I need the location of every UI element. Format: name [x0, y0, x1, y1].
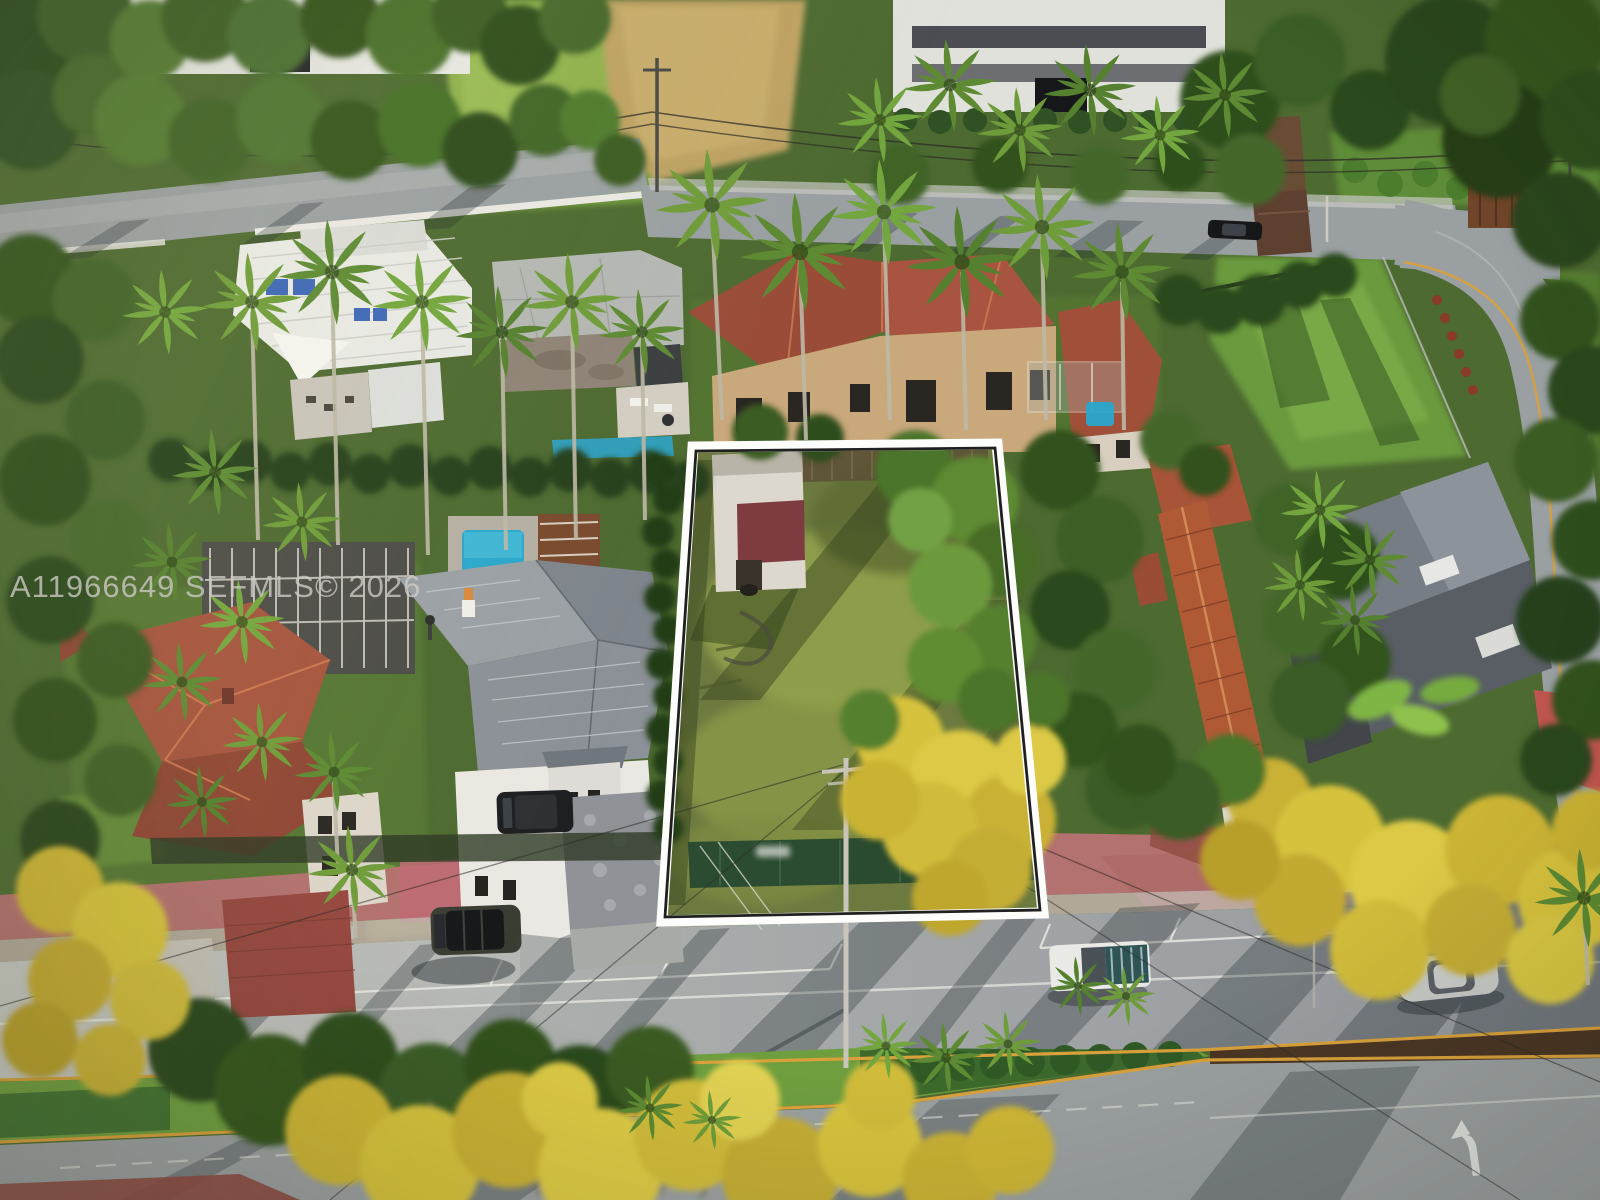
fence-banner	[756, 846, 790, 857]
vehicle-suv-driveway	[496, 790, 573, 835]
aerial-photo: A11966649 SEFMLS© 2026	[0, 0, 1600, 1200]
mls-watermark-text: A11966649 SEFMLS© 2026	[10, 569, 421, 604]
brick-patio	[222, 890, 356, 1018]
mls-watermark: A11966649 SEFMLS© 2026	[10, 571, 421, 602]
vehicle-black-car	[1208, 220, 1263, 241]
